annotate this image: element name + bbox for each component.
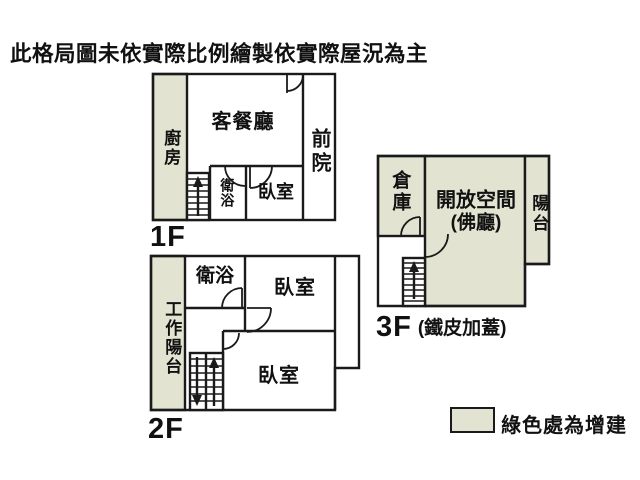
f2-bedroom-lower-label: 臥室	[258, 364, 300, 388]
f1-kitchen-label: 廚房	[160, 129, 180, 167]
f3-balcony-label: 陽台	[528, 194, 548, 234]
legend-label: 綠色處為增建	[501, 409, 627, 438]
f3-stairs	[403, 258, 425, 306]
floor-2f	[151, 256, 359, 410]
floorplan-canvas: 此格局圖未依實際比例繪製依實際屋況為主 廚房 客餐廳 前院 衛浴 臥室 1F 工…	[0, 0, 640, 480]
f3-open-space-label-line2: (佛廳)	[436, 213, 516, 236]
legend-green-swatch	[450, 407, 495, 433]
f1-entry-door-arc	[287, 75, 303, 91]
disclaimer-title: 此格局圖未依實際比例繪製依實際屋況為主	[10, 37, 428, 68]
f3-open-space-label-line1: 開放空間	[436, 189, 516, 213]
f3-floor-label: 3F(鐵皮加蓋)	[376, 311, 507, 344]
f1-bathroom-label: 衛浴	[219, 178, 236, 208]
f1-front-yard-label: 前院	[307, 128, 331, 176]
f1-bedroom-label: 臥室	[258, 182, 294, 204]
f2-work-balcony-label: 工作陽台	[161, 300, 181, 376]
f2-bedroom-lower-door-arc	[223, 333, 239, 349]
floorplan-drawing	[0, 0, 640, 480]
f2-floor-label: 2F	[148, 413, 184, 446]
f2-stairs	[190, 353, 223, 410]
f1-living-dining-label: 客餐廳	[212, 110, 275, 134]
f3-open-space-label: 開放空間 (佛廳)	[436, 189, 516, 236]
f1-floor-label: 1F	[150, 221, 186, 254]
f2-bathroom-door-arc	[222, 288, 242, 308]
f3-storage-label: 倉庫	[388, 170, 411, 214]
f2-bedroom-upper-label: 臥室	[274, 276, 316, 300]
f3-floor-label-main: 3F	[376, 311, 412, 343]
f2-bedroom-upper-door-arc	[247, 308, 271, 332]
f1-stairs	[187, 173, 209, 220]
f2-bathroom-label: 衛浴	[196, 266, 234, 289]
f3-floor-label-note: (鐵皮加蓋)	[418, 318, 507, 339]
